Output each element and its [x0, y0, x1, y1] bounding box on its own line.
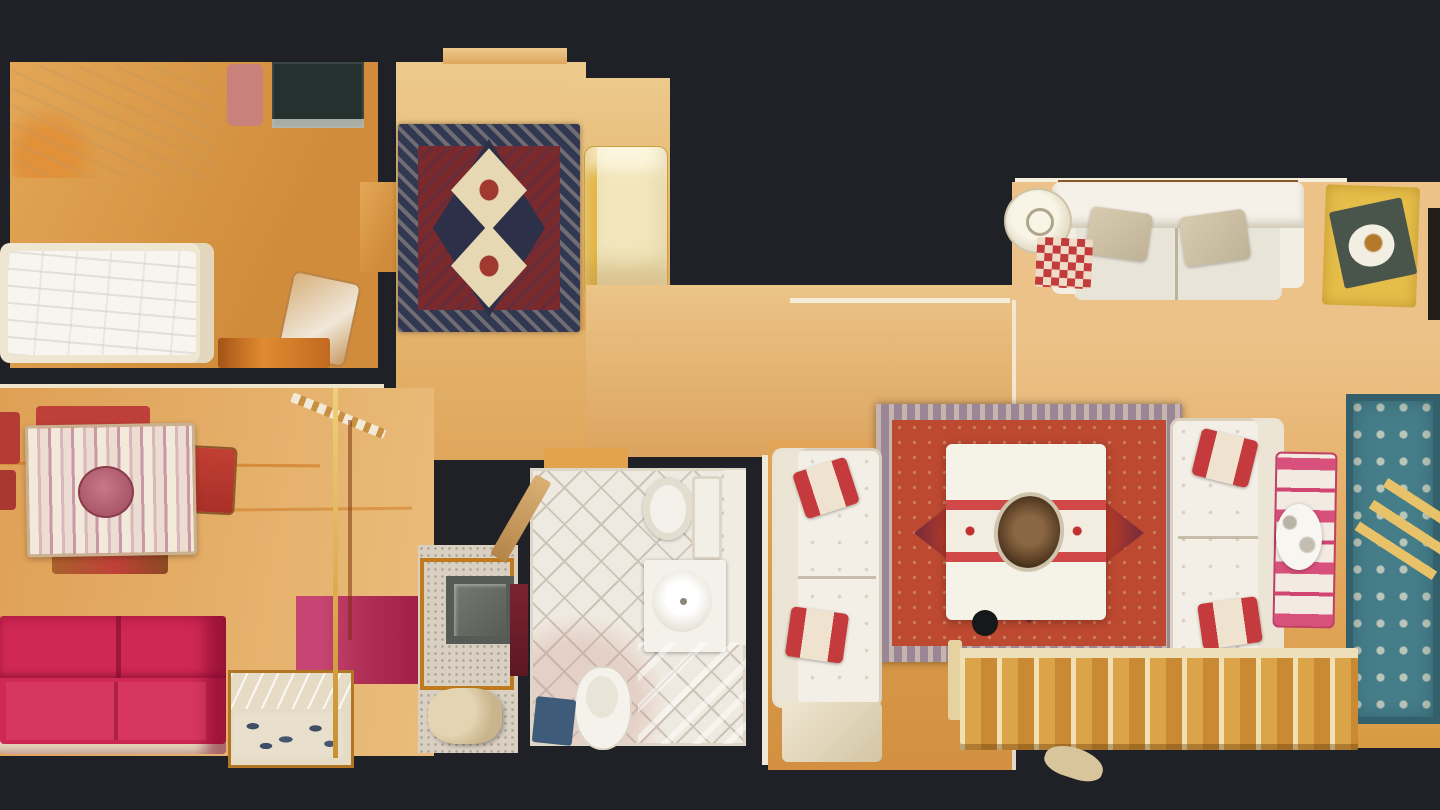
living-wall-edge-left — [762, 455, 768, 765]
wash-basin-counter — [644, 560, 726, 652]
red-sofa-seat — [6, 682, 206, 740]
sofa-left-cushion-gap — [798, 576, 876, 579]
kitchen-sink-box — [446, 576, 514, 644]
dark-cabinet — [1428, 208, 1440, 320]
lounge-chair — [584, 146, 668, 296]
media-desk-monitor — [272, 62, 364, 128]
floorplan-stage — [0, 0, 1440, 810]
red-sofa-backrest — [0, 616, 226, 678]
hallway-rug-field — [418, 146, 560, 310]
kitchen-sink-basin — [454, 584, 506, 636]
red-sofa — [0, 616, 226, 754]
staircase[interactable] — [960, 648, 1358, 750]
table-centerpiece — [78, 466, 134, 518]
bidet-bowl — [586, 676, 618, 718]
tan-pillow-1 — [1085, 206, 1153, 262]
shower-cabinet — [638, 642, 746, 744]
sofa-right-cushion-gap — [1178, 536, 1258, 539]
red-pillow-left-2 — [785, 606, 849, 664]
dining-chair-west-1 — [0, 412, 20, 464]
bathroom-wall-panel — [724, 470, 746, 645]
tray — [1329, 197, 1418, 289]
side-table-ring — [1026, 208, 1054, 236]
white-dog — [1276, 504, 1322, 570]
pole-shadow — [348, 420, 352, 640]
tan-pillow-2 — [1179, 209, 1251, 268]
yellow-ottoman — [1322, 184, 1420, 307]
duvet — [8, 251, 196, 355]
floor-marker-dot — [972, 610, 998, 636]
pink-pillow — [227, 64, 263, 126]
floor-lamp-pole — [333, 388, 338, 758]
single-bed — [0, 243, 214, 363]
blue-bath-mat — [532, 696, 577, 746]
hallway-floor-notch[interactable] — [443, 48, 567, 64]
sofa-top-arm-right — [1280, 228, 1304, 288]
double-bed — [12, 66, 214, 178]
toilet-tank — [692, 476, 722, 560]
bathroom-threshold — [544, 448, 628, 470]
maroon-cabinet — [510, 584, 528, 676]
plate — [1345, 220, 1399, 271]
sideboard-shelf-decor — [233, 713, 343, 757]
hallway-rug — [398, 124, 580, 332]
bidet — [574, 666, 632, 750]
wood-bench — [218, 338, 330, 368]
toilet-bowl — [643, 478, 693, 540]
coffee-table — [946, 444, 1106, 620]
corridor-wall-edge — [790, 298, 1010, 303]
kitchen-items — [428, 688, 502, 744]
basin-drain — [680, 598, 687, 605]
dining-chair-west-2 — [0, 470, 16, 510]
checkered-cushion — [1035, 237, 1094, 290]
ottoman-left — [782, 702, 882, 762]
red-pillow-right-2 — [1197, 596, 1263, 650]
